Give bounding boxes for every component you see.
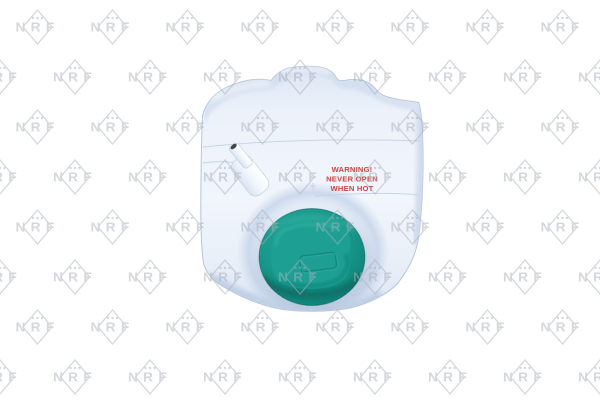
product-photo-svg: NRF bbox=[0, 0, 600, 400]
watermark-overlay bbox=[0, 0, 600, 400]
product-photo: NRF bbox=[0, 0, 600, 400]
